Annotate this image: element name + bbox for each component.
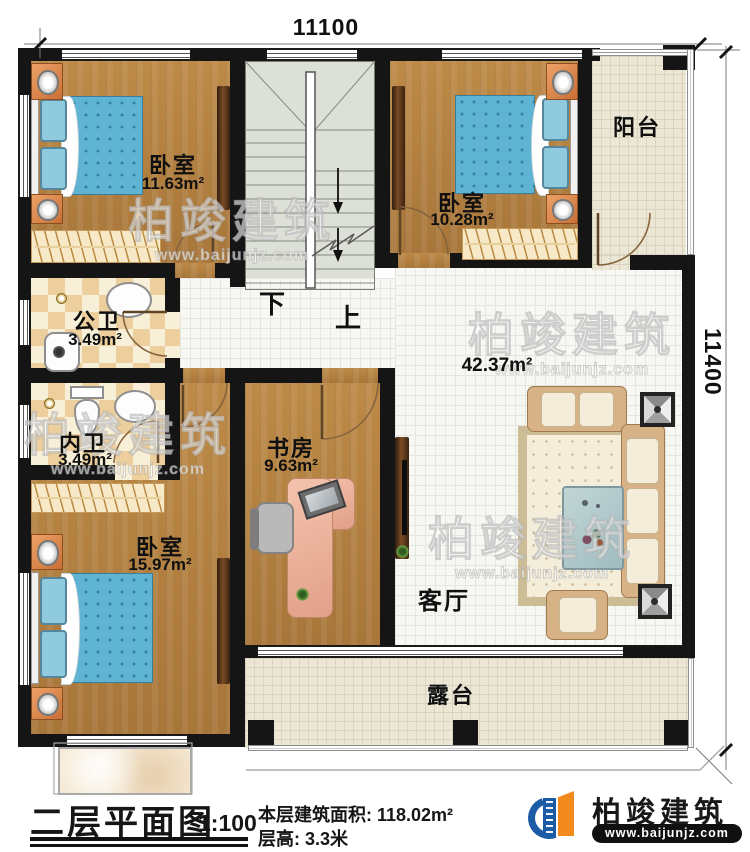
wall (165, 358, 180, 468)
wall (165, 278, 180, 312)
logo-building-orange (558, 791, 574, 836)
sofa-two-seat (527, 386, 627, 432)
cabinet (217, 86, 230, 210)
wall (380, 383, 395, 645)
wall (18, 263, 175, 278)
room-label-balcony: 阳台 (613, 110, 661, 142)
plan-scale: 1:100 (198, 810, 257, 837)
window (395, 645, 623, 658)
cabinet (392, 86, 405, 210)
nightstand (31, 194, 63, 224)
window (258, 645, 395, 658)
wall (623, 645, 695, 658)
area-label-bedroom-tr: 10.28m² (430, 210, 493, 230)
window (18, 300, 31, 345)
window (267, 48, 357, 61)
wall (630, 255, 695, 270)
bed (31, 95, 143, 196)
wall (158, 465, 180, 480)
floor-height-info: 层高: 3.3米 (258, 825, 348, 851)
window (442, 48, 582, 61)
window (67, 734, 187, 747)
dimension-top: 11100 (276, 14, 376, 41)
terrace-pillar (664, 720, 690, 747)
wardrobe (31, 483, 165, 513)
sink (114, 390, 156, 423)
floor-area-info: 本层建筑面积: 118.02m² (258, 801, 453, 827)
nightstand (31, 687, 63, 720)
plant-icon (296, 588, 309, 601)
bed (455, 94, 578, 195)
title-underline (30, 844, 248, 847)
dimension-right: 11400 (699, 328, 726, 396)
nightstand (546, 194, 578, 224)
terrace-railing (248, 745, 688, 751)
wall (682, 255, 695, 645)
bay-window-floor (58, 747, 192, 795)
wall (357, 48, 442, 61)
logo-building-blue (543, 798, 556, 837)
nightstand (31, 534, 63, 570)
area-label-public-bath: 3.49m² (68, 330, 122, 350)
room-label-terrace: 露台 (427, 678, 475, 710)
desk-chair (256, 502, 294, 554)
wall (375, 253, 398, 268)
window (18, 573, 31, 685)
doorway-patch (165, 312, 180, 358)
doorway-patch (175, 263, 215, 278)
wall (225, 368, 322, 383)
area-label-private-bath: 3.49m² (58, 450, 112, 470)
coffee-table (562, 486, 624, 570)
doorway-patch (592, 255, 630, 270)
squat-toilet-drain (53, 346, 65, 358)
wardrobe (462, 228, 578, 260)
wall (18, 368, 183, 383)
wall (230, 48, 245, 287)
cabinet (217, 558, 230, 684)
tv (402, 460, 407, 535)
desk-chair-back (250, 508, 259, 550)
table-dot (596, 504, 600, 508)
terrace-pillar (453, 720, 478, 747)
nightstand (31, 63, 63, 100)
area-label-study: 9.63m² (264, 456, 318, 476)
terrace-pillar (248, 720, 274, 747)
stairs-down-label: 下 (259, 284, 287, 321)
wall (190, 48, 267, 61)
table-dot (582, 500, 588, 506)
bed (31, 572, 153, 684)
balcony-railing (592, 49, 688, 56)
doorway-patch (183, 368, 225, 383)
area-label-bedroom-bl: 15.97m² (128, 555, 191, 575)
wall (18, 197, 31, 300)
room-label-living: 客厅 (418, 581, 470, 616)
window (62, 48, 190, 61)
window (18, 95, 31, 197)
title-underline (30, 837, 248, 841)
terrace-railing (688, 658, 694, 748)
stairs-up-label: 上 (335, 298, 363, 335)
side-table (640, 392, 675, 427)
nightstand (546, 63, 578, 100)
ceiling-lamp (44, 398, 55, 409)
window (18, 405, 31, 458)
wall (230, 383, 245, 747)
side-table (638, 584, 672, 619)
brand-logo-icon (528, 788, 588, 846)
sofa-three-seat (621, 424, 665, 598)
wardrobe (31, 230, 161, 263)
floor-stairs (245, 61, 375, 290)
wall (578, 48, 592, 268)
doorway-patch (115, 465, 158, 480)
floor-balcony (592, 56, 686, 255)
doorway-patch (398, 253, 450, 268)
floor-plan-page: 柏竣建筑 www.baijunjz.com 柏竣建筑 www.baijunjz.… (0, 0, 750, 852)
area-label-bedroom-tl: 11.63m² (142, 174, 204, 194)
plant-icon (396, 545, 409, 558)
wall (375, 48, 390, 268)
area-label-living: 42.37m² (462, 355, 533, 377)
ceiling-lamp (56, 293, 67, 304)
wall (18, 48, 31, 95)
wall (378, 368, 395, 383)
balcony-railing (687, 49, 694, 255)
table-flowers (578, 524, 608, 550)
toilet-tank (70, 386, 104, 399)
armchair (546, 590, 608, 640)
doorway-patch (322, 368, 378, 383)
brand-url-pill: www.baijunjz.com (592, 824, 742, 843)
wall (215, 263, 245, 278)
